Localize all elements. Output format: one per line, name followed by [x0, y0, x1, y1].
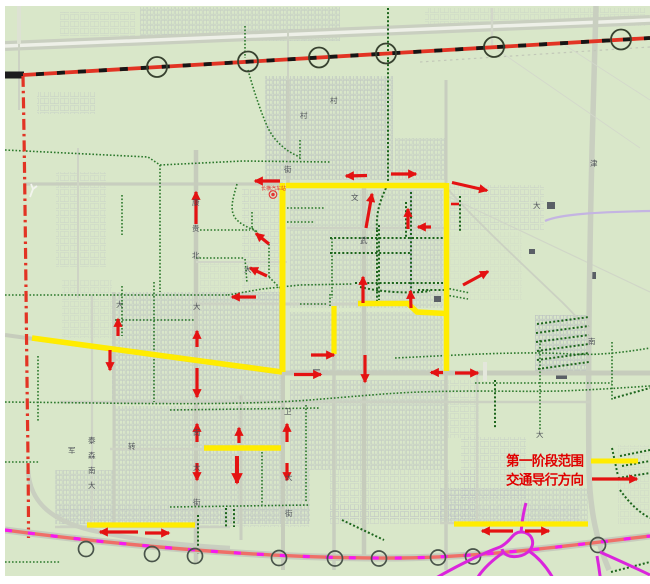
svg-text:泰: 泰 — [88, 435, 96, 445]
svg-text:街: 街 — [193, 497, 201, 507]
svg-text:北: 北 — [192, 251, 200, 260]
svg-text:大: 大 — [244, 264, 252, 274]
svg-text:康: 康 — [192, 197, 200, 207]
svg-text:贵: 贵 — [192, 223, 200, 233]
svg-text:村: 村 — [300, 110, 308, 120]
svg-text:村: 村 — [330, 95, 338, 105]
svg-text:大: 大 — [536, 429, 544, 439]
svg-text:南: 南 — [588, 336, 596, 346]
svg-text:武: 武 — [360, 235, 368, 245]
svg-text:津: 津 — [590, 159, 598, 168]
svg-text:大: 大 — [533, 200, 541, 210]
svg-text:南: 南 — [88, 465, 96, 475]
svg-text:森: 森 — [88, 450, 96, 460]
svg-text:大: 大 — [285, 472, 293, 482]
svg-text:第一阶段范围: 第一阶段范围 — [506, 453, 584, 469]
svg-text:大: 大 — [116, 299, 124, 309]
svg-text:大: 大 — [193, 462, 201, 472]
svg-text:街: 街 — [285, 508, 293, 518]
svg-text:卫: 卫 — [284, 407, 292, 416]
svg-text:大: 大 — [193, 301, 201, 311]
svg-text:交通导行方向: 交通导行方向 — [506, 472, 584, 488]
svg-text:文: 文 — [351, 192, 359, 202]
svg-text:南: 南 — [193, 427, 201, 437]
svg-text:街: 街 — [284, 164, 292, 174]
svg-text:长横汽车站: 长横汽车站 — [261, 185, 286, 192]
svg-text:军: 军 — [68, 446, 76, 455]
svg-text:大: 大 — [88, 480, 96, 490]
svg-text:转: 转 — [128, 441, 136, 451]
